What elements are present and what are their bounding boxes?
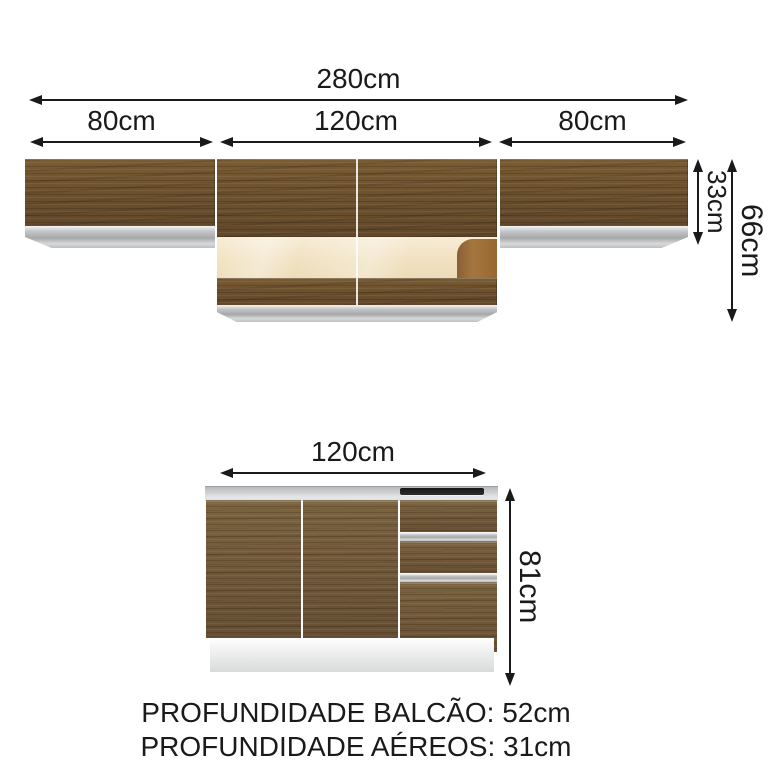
drawer-1-handle (400, 533, 497, 541)
dim-line (731, 169, 733, 312)
dim-base-width (220, 463, 486, 483)
drawer-2 (400, 541, 497, 574)
glass-reflection (457, 239, 497, 278)
wall-cabinet-middle-bottom-panel (217, 305, 497, 322)
wall-cabinet-middle (217, 159, 497, 322)
wall-cabinet-right (500, 159, 688, 248)
drawer-1 (400, 500, 497, 533)
dim-arrow-right-icon (473, 468, 486, 478)
footer: PROFUNDIDADE BALCÃO: 52cm PROFUNDIDADE A… (66, 696, 646, 764)
base-door-middle (303, 500, 398, 638)
dim-line (40, 141, 203, 143)
sink-slot (400, 488, 484, 495)
dim-line (697, 169, 699, 235)
wall-cabinet-left-bottom-panel (25, 226, 215, 248)
dim-line (39, 99, 678, 101)
footer-depth-upper: PROFUNDIDADE AÉREOS: 31cm (66, 730, 646, 764)
dim-line (509, 498, 511, 676)
footer-depth-base: PROFUNDIDADE BALCÃO: 52cm (66, 696, 646, 730)
dim-arrow-right-icon (673, 137, 686, 147)
plinth (210, 638, 494, 672)
dim-line (230, 472, 476, 474)
dim-arrow-right-icon (675, 95, 688, 105)
drawer-2-handle (400, 574, 497, 582)
dim-upper-middle-width (220, 132, 492, 152)
base-cabinet (205, 486, 498, 686)
dim-base-height-label: 81cm (514, 488, 544, 686)
dim-line (230, 141, 482, 143)
dim-upper-total-height-label: 66cm (736, 159, 766, 322)
wall-cabinet-right-door (500, 159, 688, 226)
dim-line (509, 141, 676, 143)
dim-upper-right-width (499, 132, 686, 152)
drawer-stack (400, 500, 497, 638)
dim-arrow-right-icon (479, 137, 492, 147)
dim-upper-left-width (30, 132, 213, 152)
wall-cabinet-right-bottom-panel (500, 226, 688, 248)
dim-arrow-right-icon (200, 137, 213, 147)
countertop (205, 486, 498, 501)
wall-cabinet-left (25, 159, 215, 248)
base-door-left (206, 500, 301, 638)
wall-cabinet-left-door (25, 159, 215, 226)
wall-cabinet-middle-door-seam (356, 159, 358, 305)
